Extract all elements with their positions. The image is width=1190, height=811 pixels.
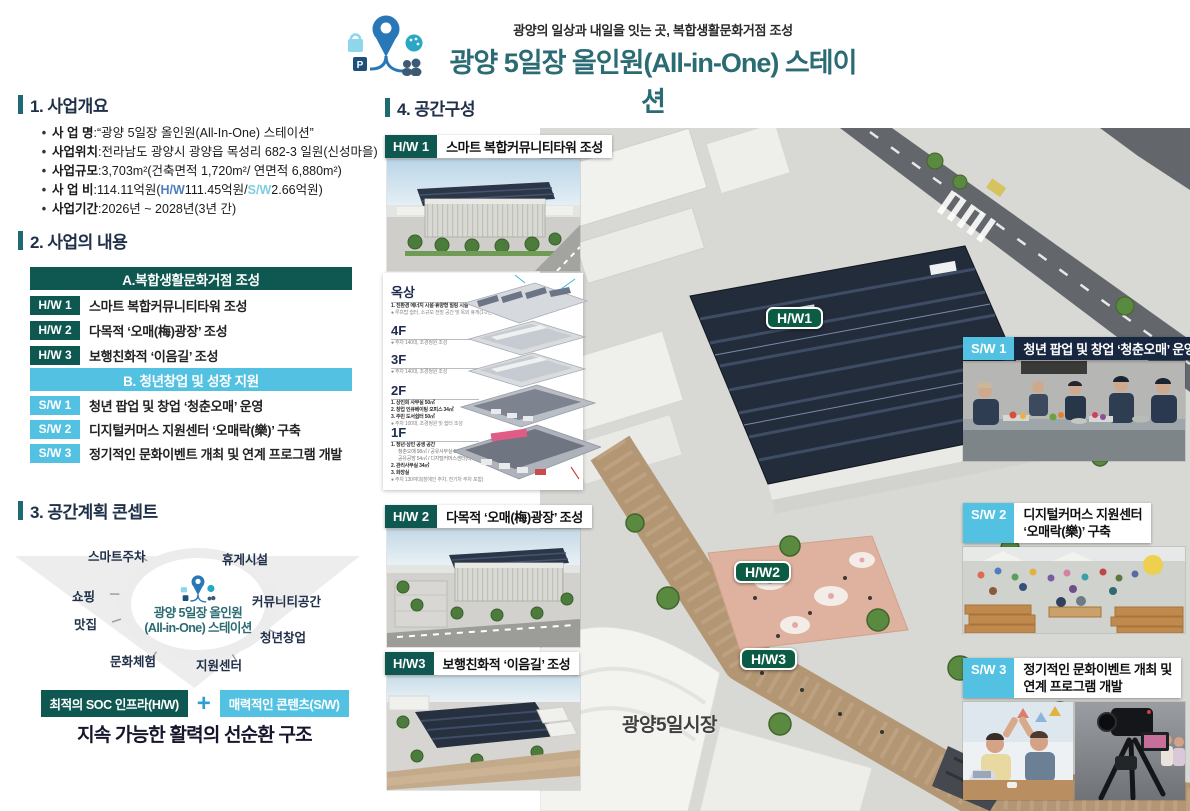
- heading-bar: [18, 95, 23, 114]
- logo-icon: P: [340, 12, 432, 76]
- sw-row-3: S/W 3 정기적인 문화이벤트 개최 및 연계 프로그램 개발: [30, 442, 390, 464]
- header-subtitle: 광양의 일상과 내일을 잇는 곳, 복합생활문화거점 조성: [438, 20, 868, 39]
- sw3-card-label: S/W 3 정기적인 문화이벤트 개최 및 연계 프로그램 개발: [963, 658, 1181, 698]
- aerial-badge-hw3: H/W3: [740, 648, 797, 670]
- spoke-shopping: 쇼핑: [72, 586, 95, 605]
- plaza: [708, 536, 908, 650]
- floor-plan-panel: 옥상 1. 친환경 에너지 시설·휴양형 힐링 시설 ● 루프탑 쉼터, 소규모…: [383, 273, 583, 490]
- overview-period: •사업기간 : 2026년 ~ 2028년(3년 간): [36, 200, 378, 219]
- hw-row-2: H/W 2 다목적 ‘오매(梅)광장’ 조성: [30, 319, 370, 341]
- sw2-badge: S/W 2: [30, 420, 80, 439]
- concept-formula: 최적의 SOC 인프라(H/W) + 매력적인 콘텐츠(S/W): [22, 690, 367, 717]
- hw-row-1: H/W 1 스마트 복합커뮤니티타워 조성: [30, 294, 370, 316]
- hw1-card-label: H/W 1 스마트 복합커뮤니티타워 조성: [385, 135, 612, 158]
- formula-hw-box: 최적의 SOC 인프라(H/W): [41, 690, 188, 717]
- hw3-render-image: [387, 676, 580, 790]
- concept-conclusion: 지속 가능한 활력의 선순환 구조: [22, 720, 367, 747]
- section4-heading: 4. 공간구성: [385, 95, 475, 120]
- sw-row-1: S/W 1 청년 팝업 및 창업 ‘청춘오매’ 운영: [30, 394, 390, 416]
- aerial-badge-hw2: H/W2: [734, 561, 791, 583]
- sw1-badge: S/W 1: [30, 396, 80, 415]
- overview-name: •사 업 명 : “광양 5일장 올인원(All-In-One) 스테이션”: [36, 124, 378, 143]
- spoke-rest-facility: 휴게시설: [222, 549, 268, 568]
- spoke-culture-experience: 문화체험: [110, 651, 156, 670]
- floor-isometric-stack: [451, 273, 601, 490]
- hw3-badge: H/W 3: [30, 346, 80, 365]
- sw2-photo: [963, 547, 1185, 633]
- hw1-render-image: [387, 159, 580, 271]
- sw1-photo: [963, 361, 1185, 461]
- section2-heading: 2. 사업의 내용: [18, 228, 127, 253]
- group-a-header: A.복합생활문화거점 조성: [30, 267, 352, 290]
- heading-bar: [385, 98, 390, 117]
- overview-budget: •사 업 비 : 114.11억원(H/W 111.45억원/S/W 2.66억…: [36, 181, 378, 200]
- hub-logo-icon: [176, 572, 220, 606]
- poster-page: H/W1 H/W2 H/W3 광양5일시장 P 광양의 일상과 내일을 잇는 곳…: [0, 0, 1190, 811]
- sw1-card-label: S/W 1 청년 팝업 및 창업 ‘청춘오매’ 운영: [963, 337, 1190, 360]
- sw-row-2: S/W 2 디지털커머스 지원센터 ‘오매락(樂)’ 구축: [30, 418, 390, 440]
- page-title: 광양 5일장 올인원(All-in-One) 스테이션: [438, 41, 868, 119]
- header: P 광양의 일상과 내일을 잇는 곳, 복합생활문화거점 조성 광양 5일장 올…: [338, 8, 868, 82]
- formula-sw-box: 매력적인 콘텐츠(S/W): [220, 690, 349, 717]
- hw3-card-label: H/W3 보행친화적 ‘이음길’ 조성: [385, 652, 579, 675]
- market-label: 광양5일시장: [622, 710, 717, 737]
- sw2-card-label: S/W 2 디지털커머스 지원센터 ‘오매락(樂)’ 구축: [963, 503, 1151, 543]
- hw1-badge: H/W 1: [30, 296, 80, 315]
- aerial-badge-hw1: H/W1: [766, 307, 823, 329]
- spoke-restaurants: 맛집: [74, 614, 97, 633]
- sw3-badge: S/W 3: [30, 444, 80, 463]
- heading-bar: [18, 231, 23, 250]
- section1-heading: 1. 사업개요: [18, 92, 108, 117]
- sw3-photo-left: [963, 702, 1073, 800]
- hw2-card-label: H/W 2 다목적 ‘오매(梅)광장’ 조성: [385, 505, 592, 528]
- hw2-badge: H/W 2: [30, 321, 80, 340]
- overview-scale: •사업규모 : 3,703m²(건축면적 1,720m²/ 연면적 6,880m…: [36, 162, 378, 181]
- spoke-community-space: 커뮤니티공간: [252, 591, 321, 610]
- hw-row-3: H/W 3 보행친화적 ‘이음길’ 조성: [30, 344, 370, 366]
- spoke-youth-startup: 청년창업: [260, 627, 306, 646]
- heading-bar: [18, 501, 23, 520]
- section3-heading: 3. 공간계획 콘셉트: [18, 498, 158, 523]
- group-a-rows: H/W 1 스마트 복합커뮤니티타워 조성 H/W 2 다목적 ‘오매(梅)광장…: [30, 294, 370, 366]
- spoke-smart-parking: 스마트주차: [88, 546, 146, 565]
- sw3-photo-right: [1075, 702, 1185, 800]
- plus-icon: +: [197, 692, 211, 716]
- overview-location: •사업위치 : 전라남도 광양시 광양읍 목성리 682-3 일원(신성마을): [36, 143, 378, 162]
- group-b-header: B. 청년창업 및 성장 지원: [30, 368, 352, 391]
- hw2-render-image: [387, 529, 580, 647]
- group-b-rows: S/W 1 청년 팝업 및 창업 ‘청춘오매’ 운영 S/W 2 디지털커머스 …: [30, 394, 390, 464]
- section1-body: •사 업 명 : “광양 5일장 올인원(All-In-One) 스테이션” •…: [36, 124, 378, 219]
- svg-text:P: P: [357, 60, 364, 71]
- spoke-support-center: 지원센터: [196, 655, 242, 674]
